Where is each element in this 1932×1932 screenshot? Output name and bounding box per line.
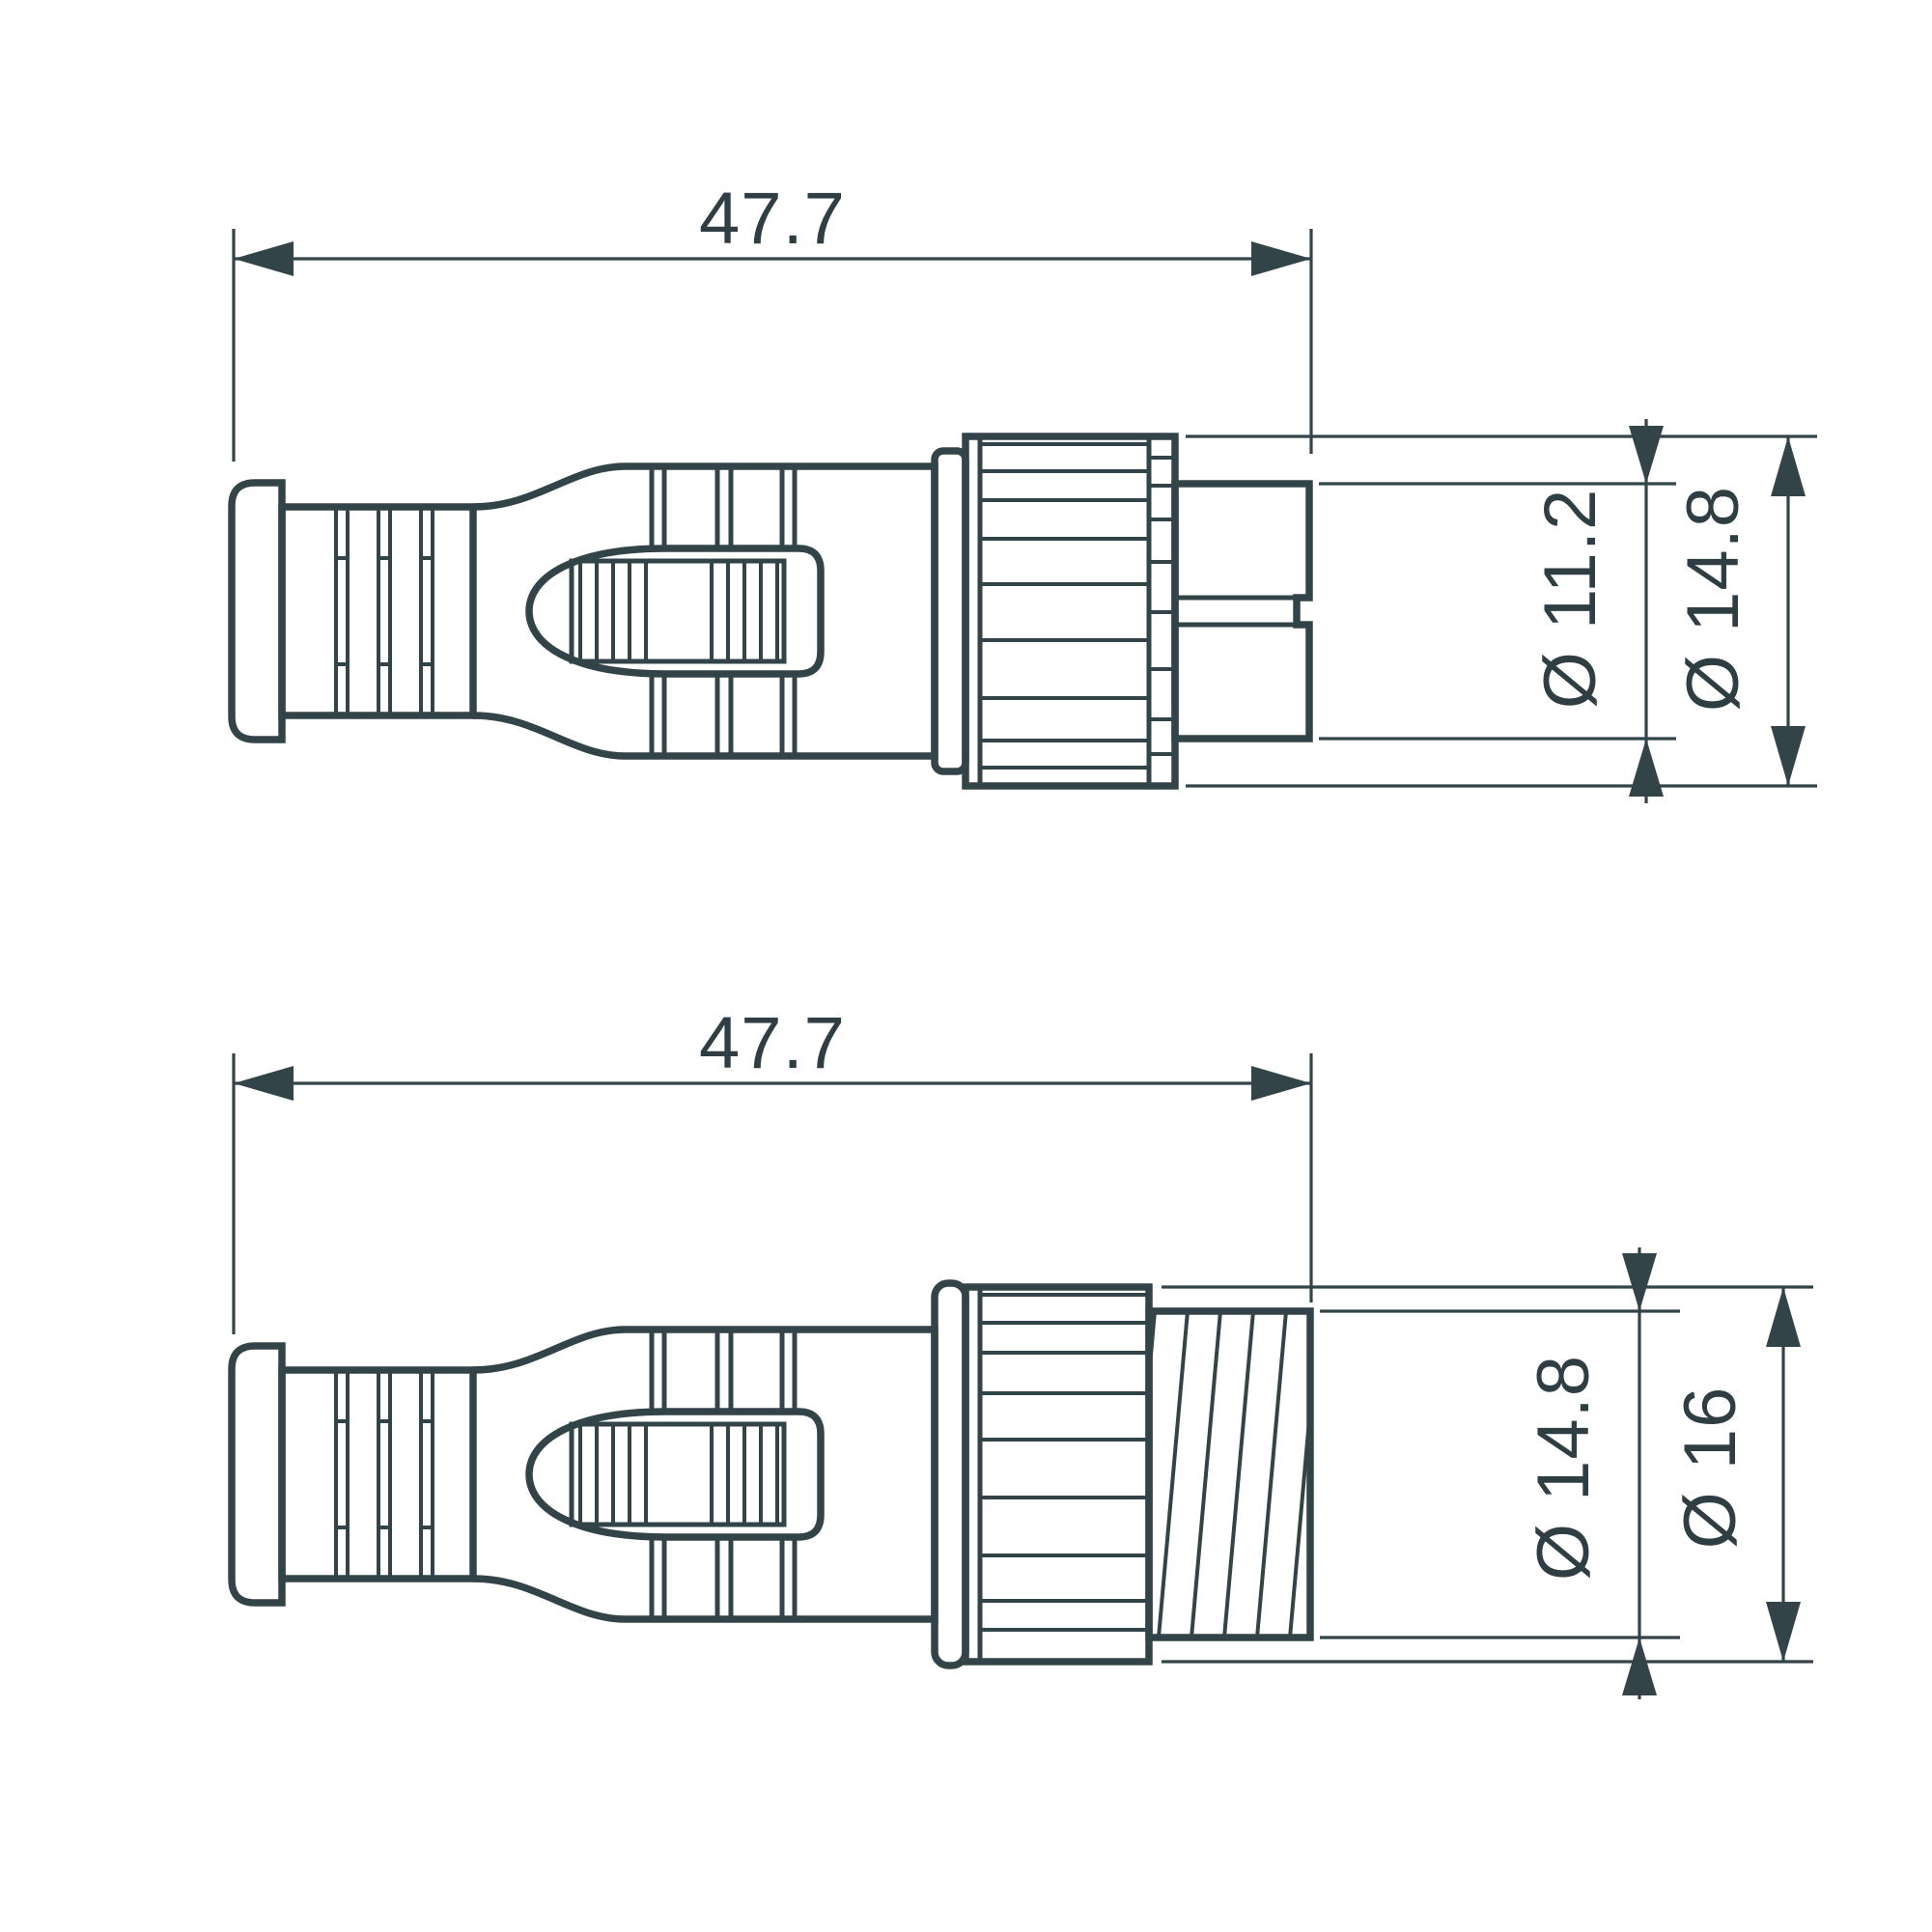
arrow-right-icon	[1251, 1066, 1311, 1101]
arrow-left-icon	[234, 1066, 294, 1101]
bottom-view: 47.7 Ø 14.8 Ø 16	[232, 1002, 1813, 1699]
dimension-diameter-nut: Ø 14.8	[1186, 436, 1817, 786]
technical-drawing-canvas: 47.7 Ø 11.2 Ø 14.8	[0, 0, 1932, 1932]
drawing-sheet: 47.7 Ø 11.2 Ø 14.8	[0, 0, 1932, 1932]
arrow-down-icon	[1629, 426, 1664, 484]
top-length-dimension-label: 47.7	[699, 178, 846, 260]
dimension-diameter-thread: Ø 14.8	[1320, 1247, 1680, 1699]
bottom-length-dimension-label: 47.7	[699, 1002, 846, 1084]
thread-hatch-lines	[1126, 1311, 1385, 1638]
top-view: 47.7 Ø 11.2 Ø 14.8	[232, 178, 1817, 803]
dimension-diameter-pin: Ø 11.2	[1319, 419, 1676, 803]
collar-flange	[935, 1283, 966, 1666]
bottom-inner-diameter-label: Ø 14.8	[1523, 1355, 1605, 1581]
arrow-down-icon	[1771, 726, 1806, 786]
threaded-coupling	[1126, 1311, 1385, 1638]
bottom-outer-diameter-label: Ø 16	[1669, 1386, 1751, 1550]
knurl-ridges	[980, 444, 1175, 768]
dimension-length-top: 47.7	[234, 178, 1311, 462]
arrow-down-icon	[1766, 1602, 1801, 1662]
arrow-down-icon	[1622, 1253, 1657, 1311]
arrow-up-icon	[1766, 1287, 1801, 1347]
knurled-nut	[966, 436, 1175, 786]
arrow-right-icon	[1251, 241, 1311, 276]
male-pin-housing	[1175, 484, 1309, 739]
arrow-up-icon	[1622, 1638, 1657, 1695]
arrow-up-icon	[1771, 436, 1806, 496]
arrow-left-icon	[234, 241, 294, 276]
connector-left-assembly	[232, 466, 935, 756]
top-outer-diameter-label: Ø 14.8	[1672, 486, 1754, 712]
knurl-ridges	[980, 1295, 1149, 1630]
top-inner-diameter-label: Ø 11.2	[1529, 489, 1611, 710]
knurled-nut	[966, 1287, 1149, 1662]
connector-left-assembly	[232, 1330, 935, 1619]
collar-flange	[935, 451, 966, 771]
arrow-up-icon	[1629, 739, 1664, 797]
